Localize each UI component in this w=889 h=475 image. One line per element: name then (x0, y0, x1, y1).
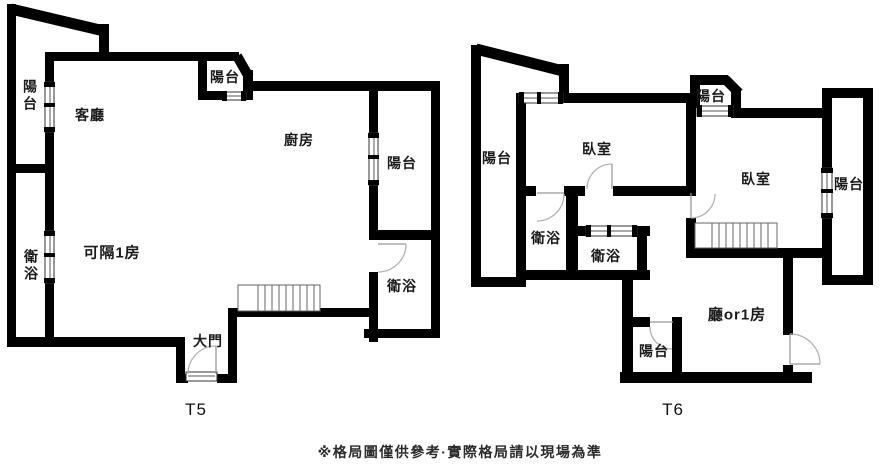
t5-floor-plan (7, 4, 440, 383)
t6-title: T6 (662, 400, 684, 420)
t5-walls (7, 4, 440, 383)
t5-label-bathroom-left: 衛浴 (23, 249, 39, 283)
t5-window-bathroom-left (44, 231, 55, 283)
disclaimer-text: ※格局圖僅供參考·實際格局請以現場為準 (318, 442, 603, 462)
t6-label-balcony-bottom: 陽台 (639, 343, 669, 359)
t6-label-bathroom-1: 衛浴 (531, 230, 561, 246)
t5-door-main (188, 346, 216, 374)
t5-window-balcony-living (44, 82, 55, 132)
t5-window-kitchen-balcony (368, 133, 379, 185)
t6-window-balcony-top (697, 105, 733, 117)
t6-window-bedroom-left (519, 92, 563, 104)
t6-door-hall-right (790, 334, 820, 364)
t6-label-hall-or-room: 廳or1房 (708, 306, 766, 323)
t5-stairs (238, 285, 320, 311)
t5-label-flex-room: 可隔1房 (83, 244, 140, 261)
t5-label-main-door: 大門 (193, 333, 223, 349)
t5-main-door-threshold (186, 372, 217, 381)
t6-floor-plan (471, 45, 873, 383)
t6-door-bedroom-right (691, 193, 715, 218)
t6-door-bathroom-1 (537, 193, 564, 221)
t6-label-bedroom-right: 臥室 (741, 171, 771, 187)
t6-stairs (695, 223, 777, 248)
t6-window-bathroom-2 (586, 225, 637, 237)
t6-label-bathroom-2: 衛浴 (591, 248, 621, 264)
t6-door-bedroom-left (587, 164, 612, 189)
t6-label-balcony-right: 陽台 (834, 176, 864, 192)
t5-door-bathroom-right (378, 244, 406, 272)
t5-window-balcony-top (222, 91, 246, 101)
t5-label-balcony-right: 陽台 (387, 155, 417, 171)
t6-label-balcony-top: 陽台 (696, 88, 726, 104)
t5-label-balcony-left: 陽台 (22, 79, 38, 113)
t5-title: T5 (185, 400, 207, 420)
t6-window-balcony-right (821, 168, 833, 218)
t5-label-bathroom-right: 衛浴 (387, 278, 417, 294)
t5-label-living-room: 客廳 (75, 107, 105, 123)
floor-plan-image: 陽台 客廳 陽台 廚房 陽台 衛浴 可隔1房 衛浴 大門 T5 陽台 臥室 陽台… (0, 0, 889, 475)
t6-label-bedroom-left: 臥室 (582, 141, 612, 157)
t6-label-balcony-left: 陽台 (482, 150, 512, 166)
floor-plan-drawing (0, 0, 889, 475)
t5-label-kitchen: 廚房 (284, 132, 314, 148)
t5-label-balcony-top: 陽台 (210, 69, 240, 85)
